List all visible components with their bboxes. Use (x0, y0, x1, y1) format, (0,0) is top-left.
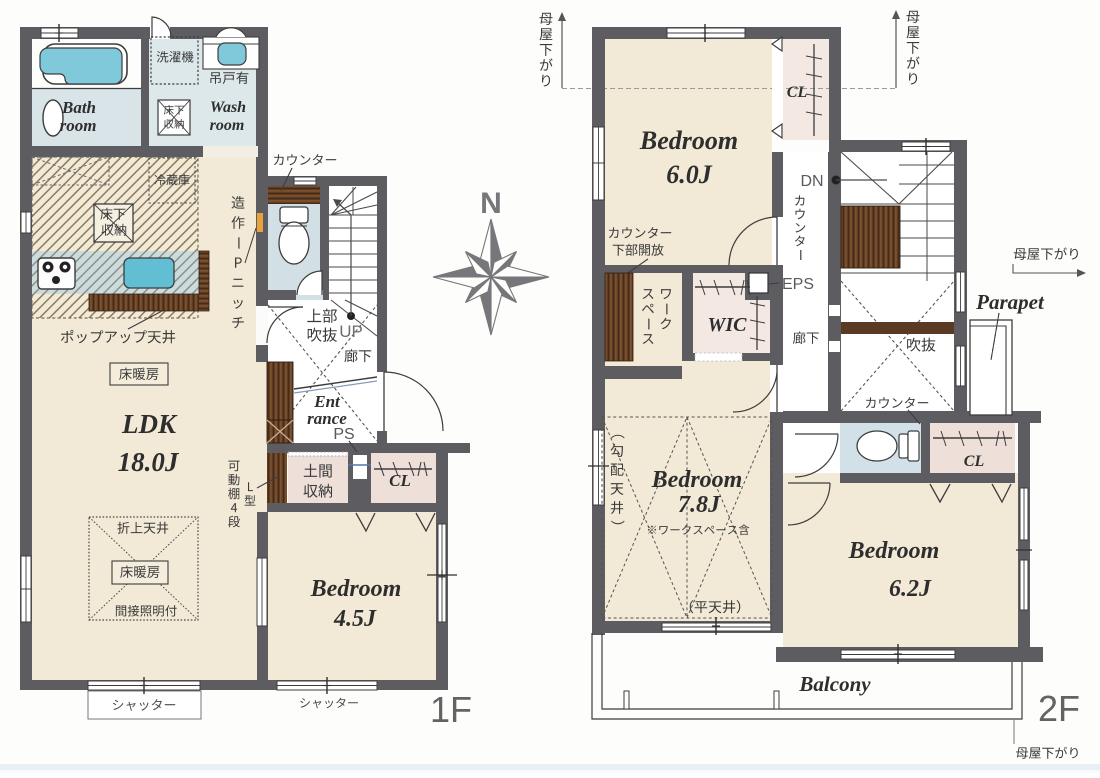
svg-text:UP: UP (339, 322, 363, 341)
svg-text:Parapet: Parapet (975, 290, 1045, 314)
svg-text:2F: 2F (1038, 688, 1080, 729)
svg-text:room: room (210, 117, 245, 134)
svg-text:Bedroom: Bedroom (651, 467, 743, 493)
svg-text:room: room (60, 116, 97, 135)
svg-text:Bedroom: Bedroom (310, 576, 402, 602)
svg-text:Bedroom: Bedroom (639, 126, 738, 155)
svg-text:LDK: LDK (121, 409, 178, 439)
svg-text:DN: DN (800, 173, 823, 190)
svg-text:1F: 1F (430, 689, 472, 730)
svg-text:18.0J: 18.0J (118, 447, 180, 477)
svg-text:CL: CL (787, 84, 808, 101)
svg-text:CL: CL (389, 471, 411, 490)
svg-text:PS: PS (333, 426, 354, 443)
svg-text:N: N (480, 187, 502, 220)
svg-text:EPS: EPS (782, 276, 814, 293)
svg-text:CL: CL (964, 453, 985, 470)
svg-text:6.0J: 6.0J (666, 160, 713, 189)
svg-text:6.2J: 6.2J (889, 576, 932, 602)
svg-text:7.8J: 7.8J (678, 492, 721, 518)
svg-text:4.5J: 4.5J (333, 606, 377, 632)
svg-text:Balcony: Balcony (798, 672, 871, 696)
svg-text:Bath: Bath (61, 98, 96, 117)
svg-text:WIC: WIC (708, 314, 748, 336)
svg-text:Wash: Wash (210, 99, 246, 116)
svg-text:Bedroom: Bedroom (848, 538, 940, 564)
